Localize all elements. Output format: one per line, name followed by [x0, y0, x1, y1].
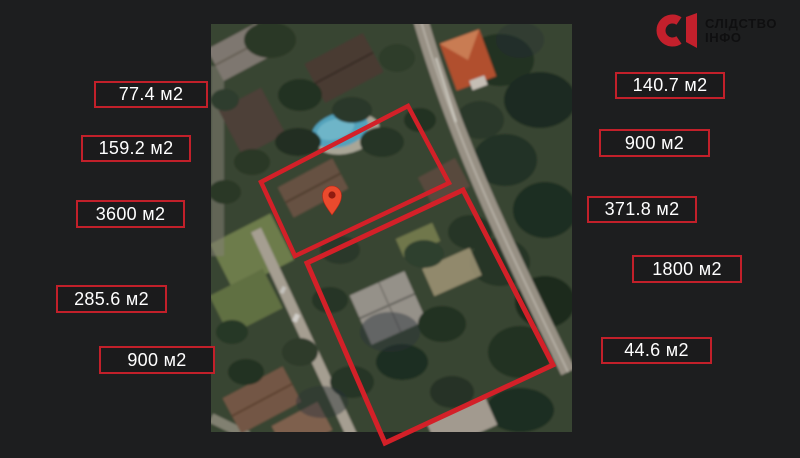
area-label-right-5: 44.6 м2	[601, 337, 712, 364]
area-label-left-1: 77.4 м2	[94, 81, 208, 108]
area-label-right-1: 140.7 м2	[615, 72, 725, 99]
slidstvo-info-logo: СЛІДСТВО ІНФО	[653, 12, 777, 49]
infographic: 77.4 м2 159.2 м2 3600 м2 285.6 м2 900 м2…	[0, 0, 800, 458]
area-label-left-3: 3600 м2	[76, 200, 185, 228]
area-label-left-4: 285.6 м2	[56, 285, 167, 313]
area-label-left-2: 159.2 м2	[81, 135, 191, 162]
area-label-right-2: 900 м2	[599, 129, 710, 157]
logo-text-line2: ІНФО	[705, 31, 777, 45]
satellite-map	[0, 0, 800, 458]
area-label-left-5: 900 м2	[99, 346, 215, 374]
logo-text-line1: СЛІДСТВО	[705, 17, 777, 31]
area-label-right-3: 371.8 м2	[587, 196, 697, 223]
area-label-right-4: 1800 м2	[632, 255, 742, 283]
satellite-image	[205, 18, 578, 454]
logo-ci-icon	[653, 12, 698, 49]
